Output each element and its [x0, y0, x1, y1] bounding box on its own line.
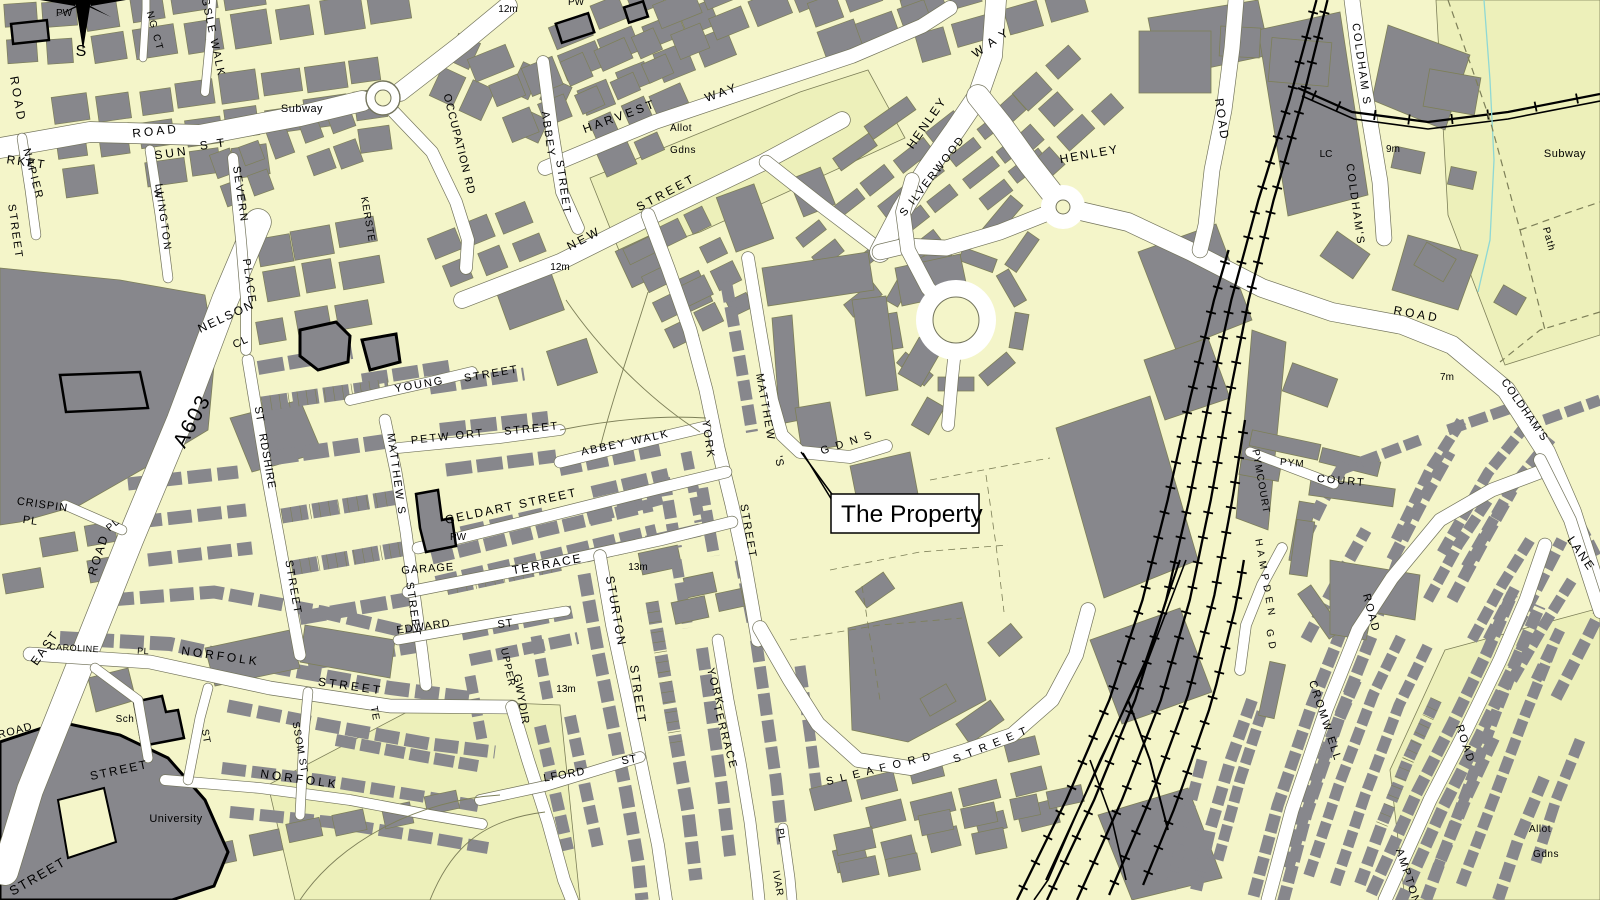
svg-text:12m: 12m — [498, 4, 517, 15]
svg-text:'S: 'S — [772, 455, 786, 468]
svg-text:PL: PL — [137, 646, 150, 657]
svg-text:PW: PW — [568, 0, 585, 8]
svg-text:PL: PL — [22, 514, 39, 528]
svg-text:PYM: PYM — [1279, 457, 1305, 470]
svg-text:Sch: Sch — [116, 714, 135, 725]
svg-text:University: University — [149, 813, 202, 825]
svg-text:Subway: Subway — [281, 103, 323, 115]
svg-text:13m: 13m — [556, 684, 575, 695]
svg-text:Allot: Allot — [670, 123, 692, 134]
svg-text:Allot: Allot — [1529, 824, 1551, 835]
svg-text:Gdns: Gdns — [670, 145, 696, 156]
svg-text:The Property: The Property — [841, 501, 983, 528]
svg-text:S: S — [76, 43, 87, 60]
svg-text:13m: 13m — [628, 562, 647, 573]
svg-text:ST: ST — [497, 617, 515, 631]
svg-text:LC: LC — [1320, 149, 1333, 160]
svg-text:Subway: Subway — [1544, 148, 1586, 160]
svg-text:9m: 9m — [1386, 144, 1400, 155]
svg-text:PW: PW — [450, 532, 467, 543]
svg-text:Gdns: Gdns — [1533, 849, 1559, 860]
svg-text:12m: 12m — [550, 262, 569, 273]
svg-text:7m: 7m — [1440, 372, 1454, 383]
